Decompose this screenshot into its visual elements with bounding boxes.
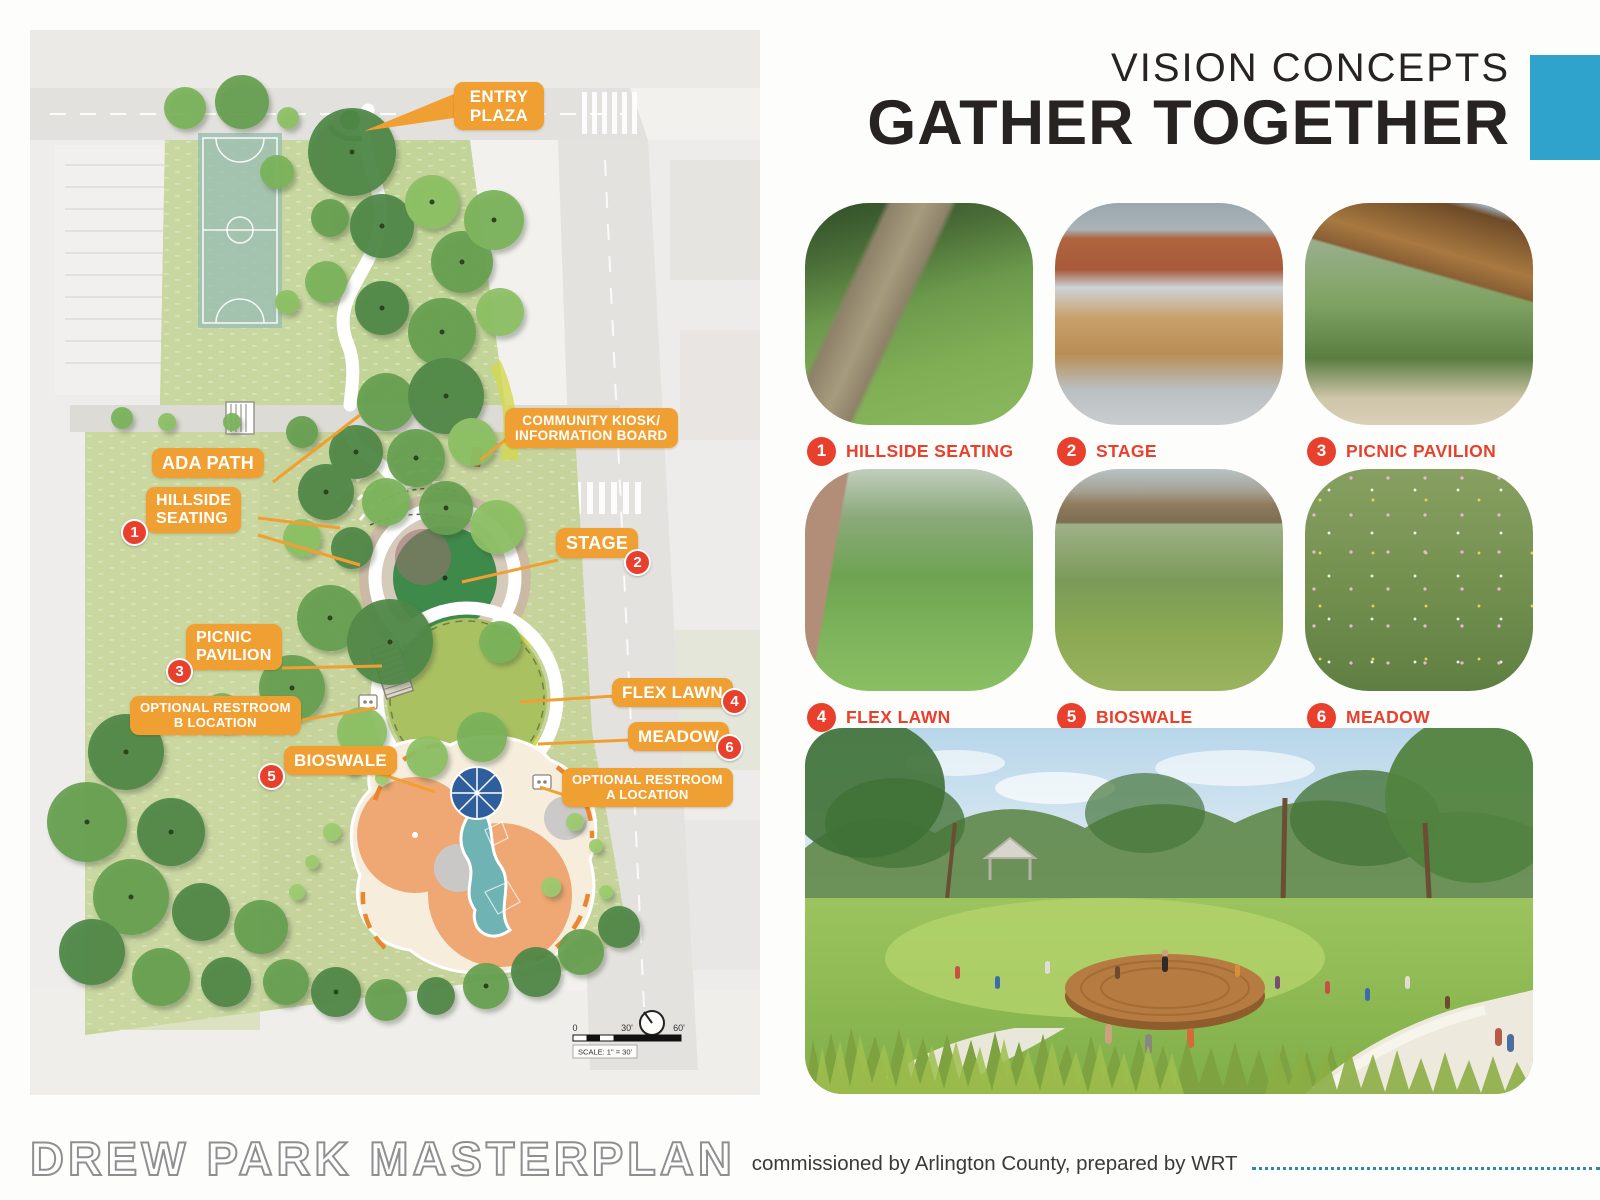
callout-entry-plaza: ENTRY PLAZA <box>454 82 544 130</box>
callout-community-kiosk: COMMUNITY KIOSK/ INFORMATION BOARD <box>505 408 678 448</box>
svg-text:SCALE: 1" = 30': SCALE: 1" = 30' <box>578 1048 632 1057</box>
accent-square <box>1530 55 1600 160</box>
svg-text:60': 60' <box>673 1023 685 1033</box>
caption-hillside-seating: 1 HILLSIDE SEATING <box>807 437 1033 465</box>
caption-stage: 2 STAGE <box>1057 437 1283 465</box>
caption-picnic-pavilion: 3 PICNIC PAVILION <box>1307 437 1533 465</box>
park-rendering <box>805 728 1533 1094</box>
site-plan-panel: 0 30' 60' SCALE: 1" = 30' ENTRY PLAZA CO… <box>30 30 760 1095</box>
masterplan-board: 0 30' 60' SCALE: 1" = 30' ENTRY PLAZA CO… <box>0 0 1600 1200</box>
callout-picnic-pavilion: PICNIC PAVILION <box>186 624 282 670</box>
callout-bioswale: BIOSWALE <box>284 746 397 775</box>
map-badge-4: 4 <box>721 688 748 715</box>
feature-1-badge: 1 <box>807 437 836 466</box>
map-badge-2: 2 <box>624 549 651 576</box>
svg-text:30': 30' <box>621 1023 633 1033</box>
feature-2-label: STAGE <box>1096 441 1157 462</box>
callout-flex-lawn: FLEX LAWN <box>612 678 733 707</box>
feature-6-label: MEADOW <box>1346 707 1430 728</box>
callout-ada-path: ADA PATH <box>152 448 264 478</box>
footer-title: DREW PARK MASTERPLAN <box>30 1135 736 1182</box>
photo-picnic-pavilion <box>1305 203 1533 425</box>
photo-flex-lawn <box>805 469 1033 691</box>
map-badge-3: 3 <box>166 658 193 685</box>
header-eyebrow: VISION CONCEPTS <box>867 46 1510 91</box>
north-arrow-icon <box>640 1011 664 1035</box>
callout-meadow: MEADOW <box>628 722 729 751</box>
caption-flex-lawn: 4 FLEX LAWN <box>807 703 1033 731</box>
feature-5-label: BIOSWALE <box>1096 707 1193 728</box>
photo-meadow <box>1305 469 1533 691</box>
feature-3-label: PICNIC PAVILION <box>1346 441 1496 462</box>
photo-hillside-seating <box>805 203 1033 425</box>
caption-bioswale: 5 BIOSWALE <box>1057 703 1283 731</box>
caption-meadow: 6 MEADOW <box>1307 703 1533 731</box>
footer-dotted-rule <box>1252 1167 1600 1170</box>
map-badge-5: 5 <box>258 763 285 790</box>
feature-1-label: HILLSIDE SEATING <box>846 441 1013 462</box>
callout-restroom-b: OPTIONAL RESTROOM B LOCATION <box>130 696 301 735</box>
feature-4-badge: 4 <box>807 703 836 732</box>
footer: DREW PARK MASTERPLAN commissioned by Arl… <box>30 1112 1600 1182</box>
photo-grid: 1 HILLSIDE SEATING 2 STAGE 3 PICNIC PAVI… <box>805 203 1533 735</box>
header: VISION CONCEPTS GATHER TOGETHER <box>867 46 1510 159</box>
map-badge-1: 1 <box>121 519 148 546</box>
shade-umbrella-icon <box>451 767 503 819</box>
feature-3-badge: 3 <box>1307 437 1336 466</box>
footer-credit: commissioned by Arlington County, prepar… <box>752 1152 1238 1176</box>
feature-2-badge: 2 <box>1057 437 1086 466</box>
map-badge-6: 6 <box>716 734 743 761</box>
photo-bioswale <box>1055 469 1283 691</box>
page-title: GATHER TOGETHER <box>867 87 1510 159</box>
callout-hillside-seating: HILLSIDE SEATING <box>146 487 241 533</box>
callout-restroom-a: OPTIONAL RESTROOM A LOCATION <box>562 768 733 807</box>
svg-text:0: 0 <box>572 1023 577 1033</box>
photo-stage <box>1055 203 1283 425</box>
feature-4-label: FLEX LAWN <box>846 707 951 728</box>
